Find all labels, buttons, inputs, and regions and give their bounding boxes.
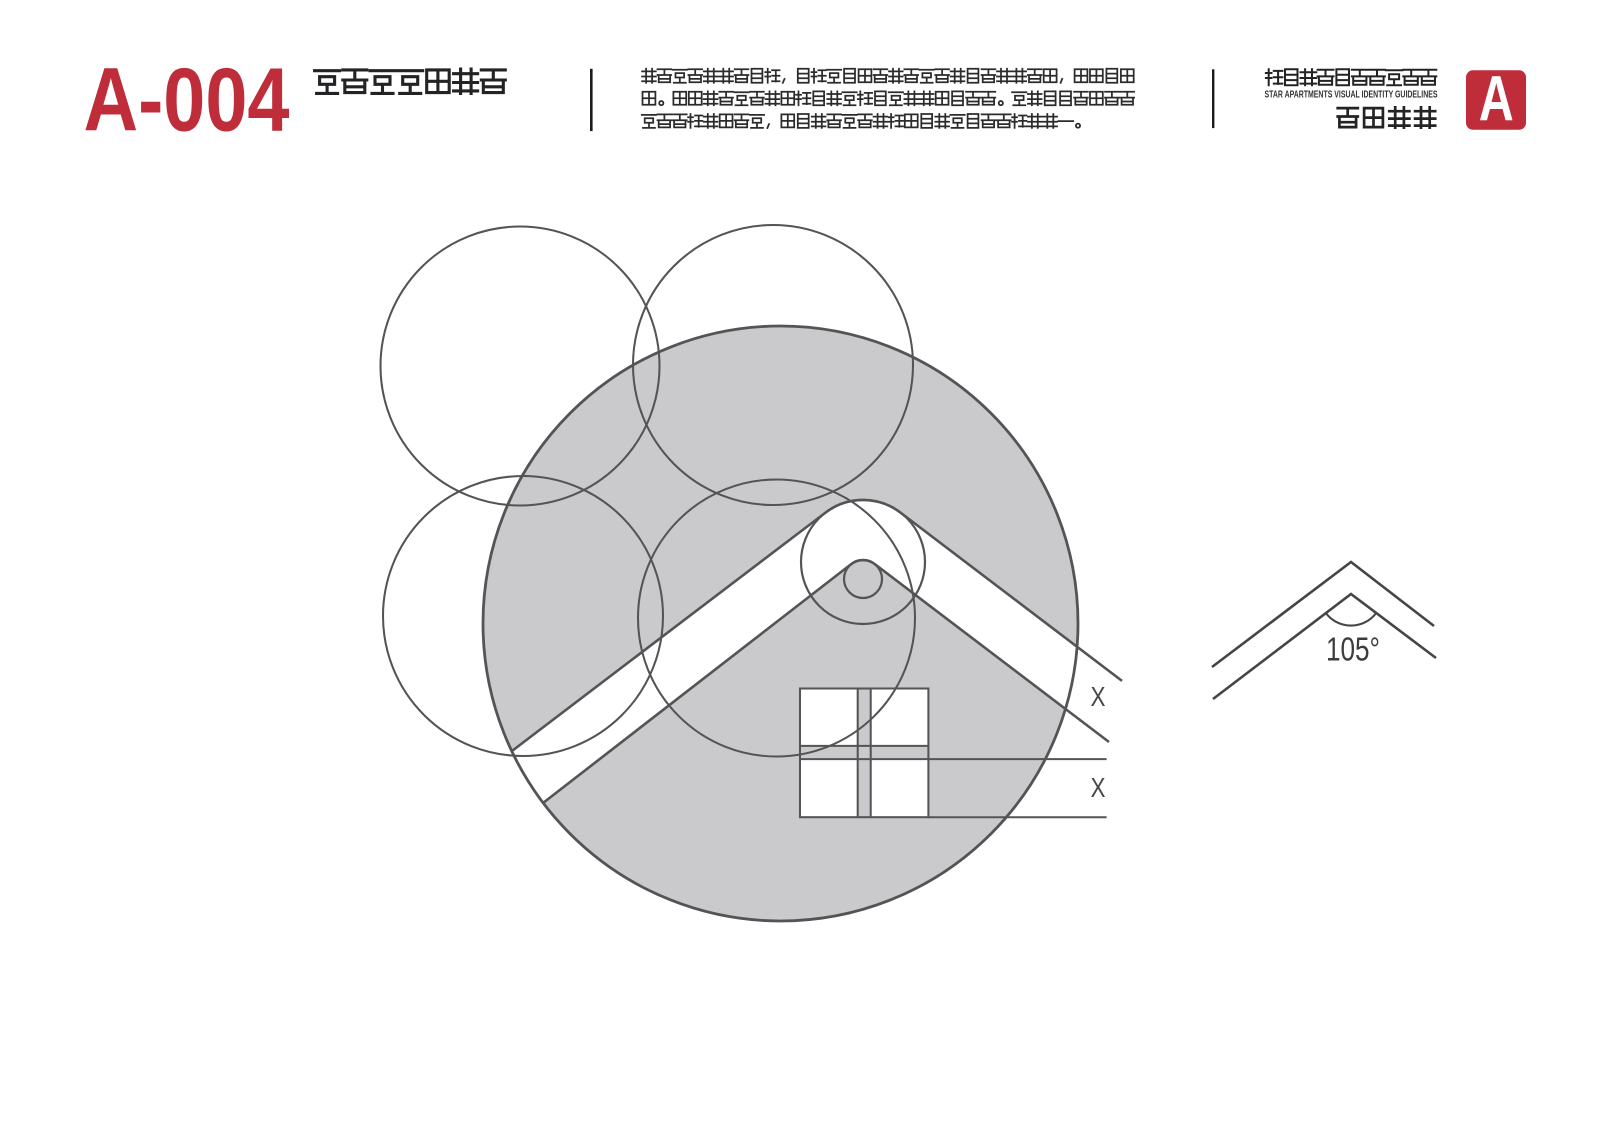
svg-text:A-004: A-004: [84, 51, 290, 151]
svg-text:105°: 105°: [1326, 631, 1380, 668]
svg-text:STAR APARTMENTS VISUAL IDENTIT: STAR APARTMENTS VISUAL IDENTITY GUIDELIN…: [1265, 90, 1438, 101]
svg-text:X: X: [1091, 772, 1106, 803]
svg-text:A: A: [1479, 63, 1514, 135]
svg-text:X: X: [1091, 681, 1106, 712]
